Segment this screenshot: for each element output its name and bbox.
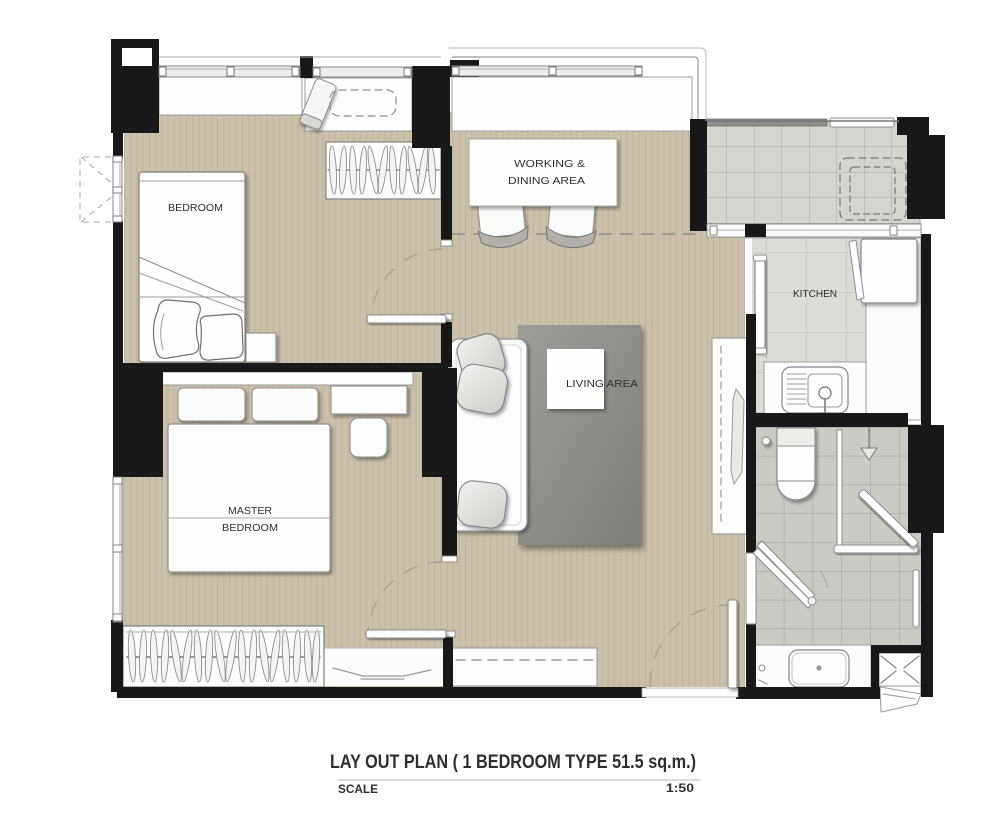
svg-text:BEDROOM: BEDROOM (222, 523, 278, 534)
svg-text:MASTER: MASTER (228, 506, 272, 517)
svg-text:WORKING &: WORKING & (514, 158, 585, 170)
svg-text:BEDROOM: BEDROOM (168, 203, 223, 214)
svg-text:LAY OUT PLAN ( 1 BEDROOM TYPE: LAY OUT PLAN ( 1 BEDROOM TYPE 51.5 sq.m.… (330, 752, 696, 773)
svg-text:LIVING AREA: LIVING AREA (566, 378, 638, 390)
svg-text:SCALE: SCALE (338, 782, 378, 796)
svg-text:KITCHEN: KITCHEN (793, 289, 837, 300)
svg-text:DINING AREA: DINING AREA (508, 175, 585, 187)
svg-text:1:50: 1:50 (666, 781, 694, 795)
